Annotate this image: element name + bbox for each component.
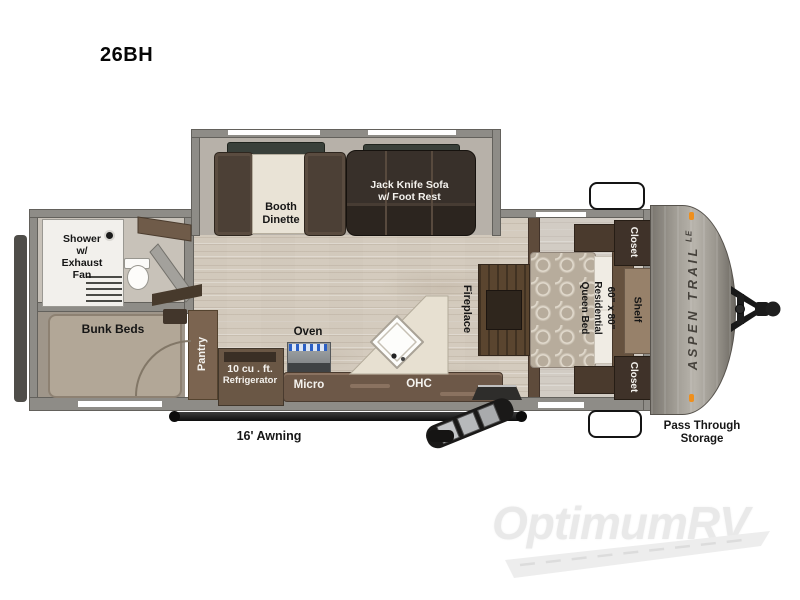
booth-dinette-label-line2: Dinette (262, 214, 299, 227)
closet-bottom-label: Closet (627, 355, 639, 399)
pantry-label: Pantry (195, 324, 209, 384)
refrigerator-label: 10 cu . ft. Refrigerator (218, 360, 282, 390)
hitch (731, 286, 781, 332)
pass-through-label-line1: Pass Through (664, 420, 741, 433)
brand-suffix: LE (684, 230, 693, 242)
awning-label: 16' Awning (214, 428, 324, 444)
floorplan-canvas: OptimumRV (0, 0, 800, 600)
entry-step-well (472, 386, 522, 400)
entry-steps (423, 395, 517, 452)
bunk-beds-label: Bunk Beds (48, 322, 178, 338)
queen-bed-label: 60" x 80" Residential Queen Bed (576, 248, 620, 368)
bath-vanity (138, 217, 191, 241)
entry-steps-foot (428, 430, 454, 442)
shower-label-line4: Fan (73, 270, 92, 282)
sofa-label-line2: w/ Foot Rest (378, 192, 440, 204)
bed-type-label: Residential (592, 281, 605, 334)
booth-dinette-label: Booth Dinette (246, 199, 316, 229)
bed-size-label: 60" x 80" (605, 287, 618, 330)
hitch-ball-icon (766, 302, 781, 317)
brand-logo: ASPEN TRAILLE (683, 208, 703, 393)
fireplace-label: Fireplace (460, 274, 474, 344)
shape-overlay (0, 0, 800, 600)
watermark-road (505, 531, 770, 578)
bunk-door-arc (136, 341, 191, 396)
booth-dinette-label-line1: Booth (265, 201, 297, 214)
sink-faucet-icon (391, 353, 396, 358)
pass-through-label-line2: Storage (681, 433, 724, 446)
closet-top-label: Closet (627, 220, 639, 264)
micro-label: Micro (286, 378, 332, 394)
shower-label: Shower w/ Exhaust Fan (44, 228, 120, 288)
sink-drain-icon (401, 357, 405, 361)
refrigerator-label-line2: Refrigerator (223, 376, 277, 387)
refrigerator-label-line1: 10 cu . ft. (227, 364, 273, 376)
sofa-label: Jack Knife Sofa w/ Foot Rest (352, 178, 467, 206)
bed-name-label: Queen Bed (579, 282, 592, 335)
oven-label: Oven (282, 326, 334, 340)
ohc-label: OHC (398, 378, 440, 392)
page-title: 26BH (100, 44, 153, 67)
brand-name: ASPEN TRAIL (685, 245, 700, 370)
brand-logo-row: ASPEN TRAILLE (684, 230, 700, 370)
shelf-label: Shelf (631, 285, 644, 335)
pass-through-label: Pass Through Storage (644, 416, 760, 450)
